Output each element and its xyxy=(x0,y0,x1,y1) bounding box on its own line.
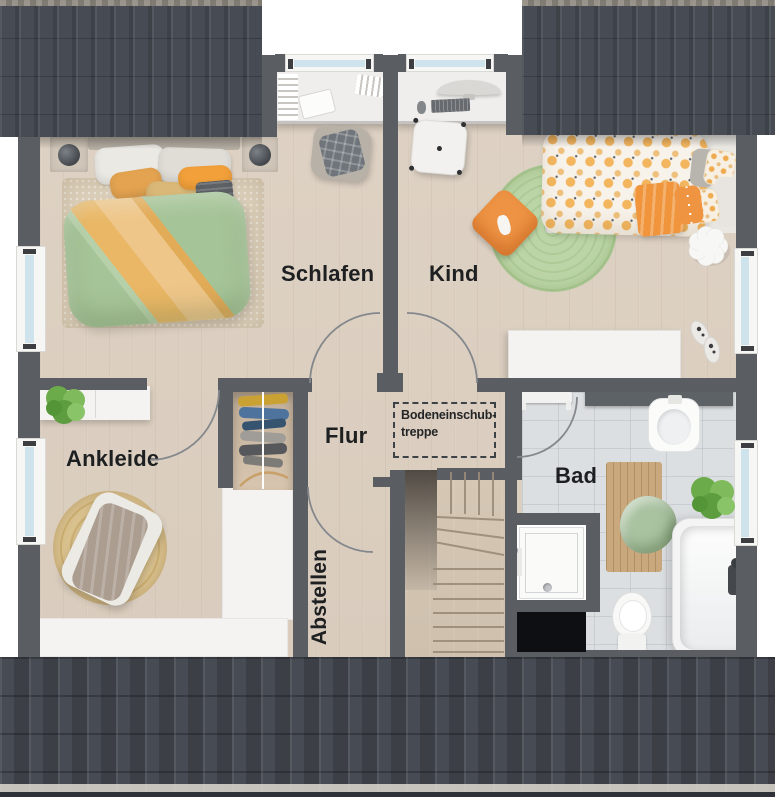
window-glass xyxy=(294,60,365,67)
window-dormer-kind xyxy=(406,54,494,72)
knee-storage-area-bottom xyxy=(37,618,288,657)
wall-schlafen-ankleide xyxy=(40,378,147,390)
wall-abstellen-door-stub xyxy=(373,477,390,487)
desk-books-stack xyxy=(278,74,298,120)
staircase-void-shadow xyxy=(405,470,437,590)
window-ankleide-left xyxy=(16,438,46,545)
wall-dormer-right-side xyxy=(506,55,522,135)
roof-top-right xyxy=(522,0,775,135)
label-schlafen: Schlafen xyxy=(281,261,374,287)
roof-edge-shadow-right xyxy=(522,135,736,147)
kids-pillow-orange-buttons xyxy=(673,184,704,225)
dressing-room-sideboard xyxy=(40,386,150,420)
window-glass xyxy=(25,447,34,536)
wall-niche-top xyxy=(218,378,312,392)
knee-storage-area-vertical xyxy=(222,487,293,620)
wall-shower-right xyxy=(586,513,600,612)
label-flur: Flur xyxy=(325,423,367,449)
wall-bad-left-upper xyxy=(505,392,522,480)
label-bad: Bad xyxy=(555,463,597,489)
wall-right-exterior xyxy=(736,135,757,657)
window-schlafen-left xyxy=(16,246,46,352)
toilet xyxy=(612,592,652,638)
window-dormer-schlafen xyxy=(285,54,374,72)
wall-kind-bad-top xyxy=(477,378,756,392)
wall-shower-bottom xyxy=(505,600,600,612)
double-bed-duvet xyxy=(62,190,252,329)
towel-rail xyxy=(520,392,572,403)
attic-hatch-note: Bodeneinschub- treppe xyxy=(393,402,496,458)
wall-abstellen-left xyxy=(293,392,308,657)
label-kind: Kind xyxy=(429,261,479,287)
roof-bottom xyxy=(0,657,775,797)
window-kind-right xyxy=(734,248,758,354)
window-glass xyxy=(741,449,749,537)
roof-edge-shadow-left xyxy=(40,137,262,149)
floor-plan: Schlafen Kind Flur Ankleide Bad Abstelle… xyxy=(0,0,775,797)
wall-bad-left-lower xyxy=(505,480,517,657)
desk-mouse xyxy=(417,101,426,114)
bathroom-sink xyxy=(648,398,700,452)
wall-niche-left-post xyxy=(218,392,233,488)
wall-schlafen-kind-divider xyxy=(383,55,398,375)
label-ankleide: Ankleide xyxy=(66,446,159,472)
kids-desk-chair xyxy=(410,119,468,177)
kids-dresser xyxy=(508,330,681,380)
desk-keyboard xyxy=(431,98,471,113)
wall-flur-stairs xyxy=(437,468,522,480)
washing-machine-dark xyxy=(517,612,586,652)
window-glass xyxy=(415,60,485,67)
attic-hatch-note-line2: treppe xyxy=(401,424,494,441)
shower-tray xyxy=(517,525,586,601)
wall-left-exterior xyxy=(18,136,40,657)
window-glass xyxy=(25,255,34,343)
label-abstellen: Abstellen xyxy=(308,535,332,659)
window-glass xyxy=(741,257,749,345)
roof-top-left xyxy=(0,0,262,137)
wall-divider-foot xyxy=(377,373,403,392)
open-wardrobe-niche xyxy=(233,392,293,490)
window-bad-right xyxy=(734,440,758,546)
attic-hatch-note-line1: Bodeneinschub- xyxy=(401,407,494,424)
wall-abstellen-right xyxy=(390,470,405,657)
